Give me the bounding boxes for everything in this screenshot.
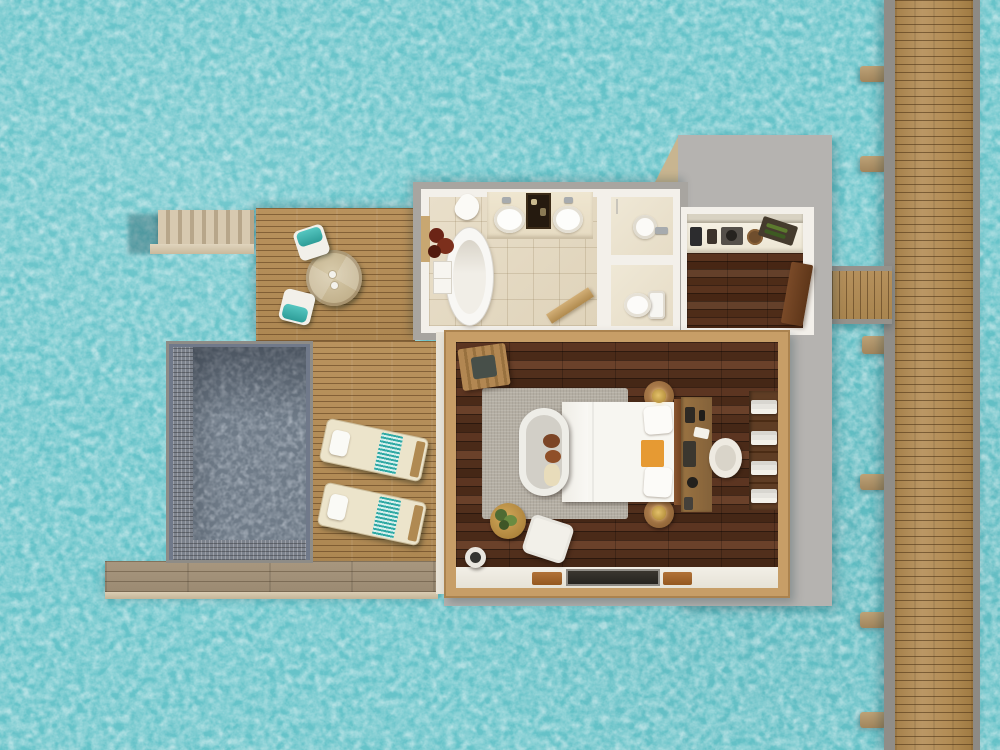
pool-mosaic-border (173, 540, 306, 560)
towel-stack (751, 489, 777, 503)
shower-pipe (616, 199, 618, 214)
drinking-glass (331, 282, 338, 289)
jetty-support-beam (860, 612, 886, 628)
jetty-support-beam (860, 474, 886, 490)
teal-striped-towel (374, 432, 404, 475)
kettle-on-desk (687, 477, 698, 488)
desk-accessory (683, 441, 696, 467)
telephone (699, 410, 705, 421)
lounger-pillow (328, 429, 351, 457)
faucet-right (564, 197, 573, 203)
towel-art (543, 434, 560, 448)
basket (465, 547, 486, 568)
amenity-tray (526, 193, 551, 229)
pool-mosaic-border (173, 347, 193, 557)
towel-stack (751, 400, 777, 414)
jetty-support-beam (860, 66, 886, 82)
orange-throw (641, 440, 664, 467)
amenity-bottle (531, 199, 537, 205)
entrance-walkway (832, 266, 892, 324)
towel-stack (751, 431, 777, 445)
capsule-box (707, 229, 717, 244)
bathtub-basin (453, 240, 486, 314)
sea-steps (158, 210, 254, 246)
bath-side-cabinet (433, 261, 452, 294)
folded-towel (544, 464, 560, 486)
amenity-bottle (540, 208, 546, 216)
lower-boardwalk (105, 561, 438, 592)
kettle (726, 230, 737, 241)
towel-art (545, 450, 561, 463)
luggage-bench (457, 343, 510, 391)
bed-pillow (643, 466, 673, 498)
sea-steps-landing (150, 244, 254, 254)
doormat (532, 572, 562, 585)
vanity-sink-left (494, 206, 525, 233)
teal-cushion (281, 303, 309, 324)
jetty-support-beam (860, 712, 886, 728)
espresso-machine (690, 227, 702, 246)
teal-striped-towel (372, 496, 402, 539)
drinking-glass (329, 271, 336, 278)
lounger-pillow (326, 493, 349, 521)
plant-leaf (499, 520, 509, 530)
jetty-support-beam (860, 156, 886, 172)
sliding-glass-door (566, 569, 660, 586)
duvet-crease (592, 402, 594, 502)
villa-floor-plan (0, 0, 1000, 750)
daybed-chair (519, 408, 569, 496)
round-side-table (490, 503, 526, 539)
towel-shelf-unit (749, 391, 778, 510)
plant-leaf (428, 245, 441, 258)
pool-wall-shadow (193, 347, 306, 540)
main-jetty (884, 0, 980, 750)
doormat (663, 572, 692, 585)
desk-accessory (684, 497, 693, 510)
table-lamp (652, 389, 666, 403)
toilet-bowl (624, 293, 651, 317)
towel-stack (751, 461, 777, 475)
shower-faucet (655, 227, 668, 234)
desk-tray (685, 407, 695, 423)
faucet-left (502, 197, 511, 203)
pantry-glass-shelf (687, 214, 803, 223)
vanity-sink-right (553, 206, 583, 233)
luggage-bag (471, 354, 498, 379)
shower-basin (633, 215, 657, 239)
teal-cushion (295, 226, 323, 248)
pool-water (193, 347, 306, 540)
plunge-pool (166, 341, 313, 563)
bed-pillow (643, 405, 673, 435)
table-lamp (652, 506, 666, 520)
desk-chair (709, 438, 742, 478)
